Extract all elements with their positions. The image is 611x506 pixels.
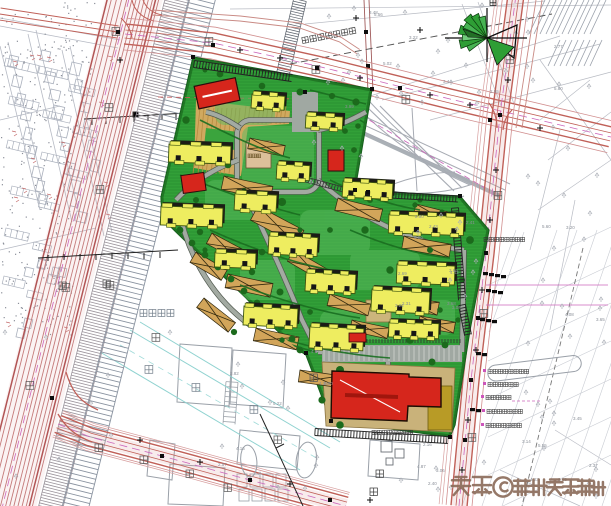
svg-text:3.22: 3.22 [409,35,418,40]
svg-text:3.14: 3.14 [522,439,531,444]
svg-text:3.68: 3.68 [447,301,456,306]
svg-text:2.95: 2.95 [490,89,499,94]
svg-text:2.40: 2.40 [428,481,437,486]
svg-text:3.65: 3.65 [596,317,605,322]
svg-text:5.56: 5.56 [374,12,383,17]
svg-text:5.60: 5.60 [542,224,551,229]
svg-text:2.37: 2.37 [589,463,598,468]
svg-text:4.87: 4.87 [417,464,426,469]
svg-text:4.42: 4.42 [450,270,459,275]
svg-text:3.82: 3.82 [230,371,239,376]
svg-text:3.99: 3.99 [345,104,354,109]
svg-text:3.45: 3.45 [573,416,582,421]
svg-text:4.36: 4.36 [319,381,328,386]
svg-text:5.80: 5.80 [554,86,563,91]
svg-text:5.55: 5.55 [538,443,547,448]
svg-text:3.20: 3.20 [566,225,575,230]
svg-text:4.90: 4.90 [414,235,423,240]
svg-text:5.22: 5.22 [273,401,282,406]
svg-text:2.16: 2.16 [423,442,432,447]
svg-text:4.08: 4.08 [565,312,574,317]
svg-text:2.90: 2.90 [415,214,424,219]
svg-text:4.37: 4.37 [311,349,320,354]
svg-text:2.41: 2.41 [466,220,475,225]
svg-text:2.77: 2.77 [554,44,563,49]
svg-text:2.31: 2.31 [402,301,411,306]
svg-text:2.69: 2.69 [398,271,407,276]
svg-text:2.43: 2.43 [429,224,438,229]
svg-text:3.06: 3.06 [436,468,445,473]
svg-text:2.57: 2.57 [218,462,227,467]
svg-text:5.02: 5.02 [383,61,392,66]
svg-text:4.16: 4.16 [236,446,245,451]
